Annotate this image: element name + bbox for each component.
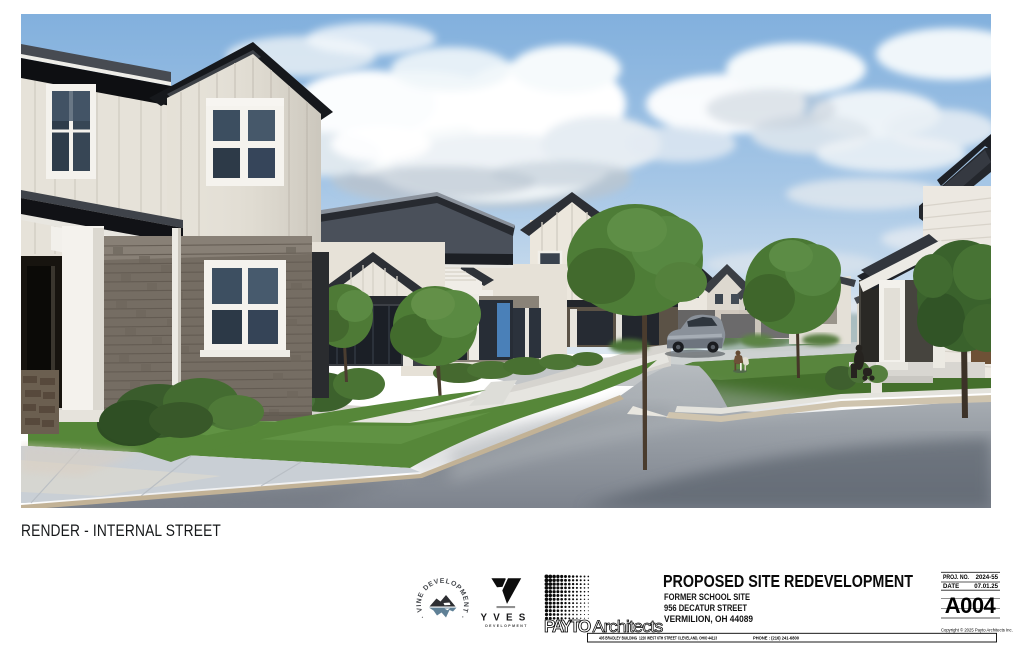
svg-text:A004: A004: [945, 593, 997, 618]
svg-text:FORMER SCHOOL SITE: FORMER SCHOOL SITE: [664, 592, 750, 602]
svg-text:PAYTO: PAYTO: [544, 616, 591, 636]
svg-text:PROPOSED SITE REDEVELOPMENT: PROPOSED SITE REDEVELOPMENT: [663, 571, 913, 591]
svg-text:PHONE : (216) 241-6800: PHONE : (216) 241-6800: [753, 636, 799, 641]
svg-text:PROJ. NO.: PROJ. NO.: [943, 574, 969, 581]
svg-text:DEVELOPMENT: DEVELOPMENT: [485, 624, 528, 628]
svg-text:956 DECATUR STREET: 956 DECATUR STREET: [664, 603, 747, 613]
svg-text:VERMILION, OH 44089: VERMILION, OH 44089: [664, 614, 753, 624]
svg-text:YVES: YVES: [481, 613, 532, 624]
svg-text:· VINE DEVELOPMENT ·: · VINE DEVELOPMENT ·: [416, 578, 469, 620]
svg-text:07.01.25: 07.01.25: [974, 583, 998, 590]
svg-text:DATE: DATE: [943, 583, 959, 590]
svg-text:2024-55: 2024-55: [976, 574, 999, 581]
svg-text:Copyright © 2025 Payto Archite: Copyright © 2025 Payto Architects Inc.: [941, 628, 1013, 633]
svg-text:405 BRADLEY BUILDING 1220 WES: 405 BRADLEY BUILDING 1220 WEST 6TH STREE…: [599, 636, 717, 641]
